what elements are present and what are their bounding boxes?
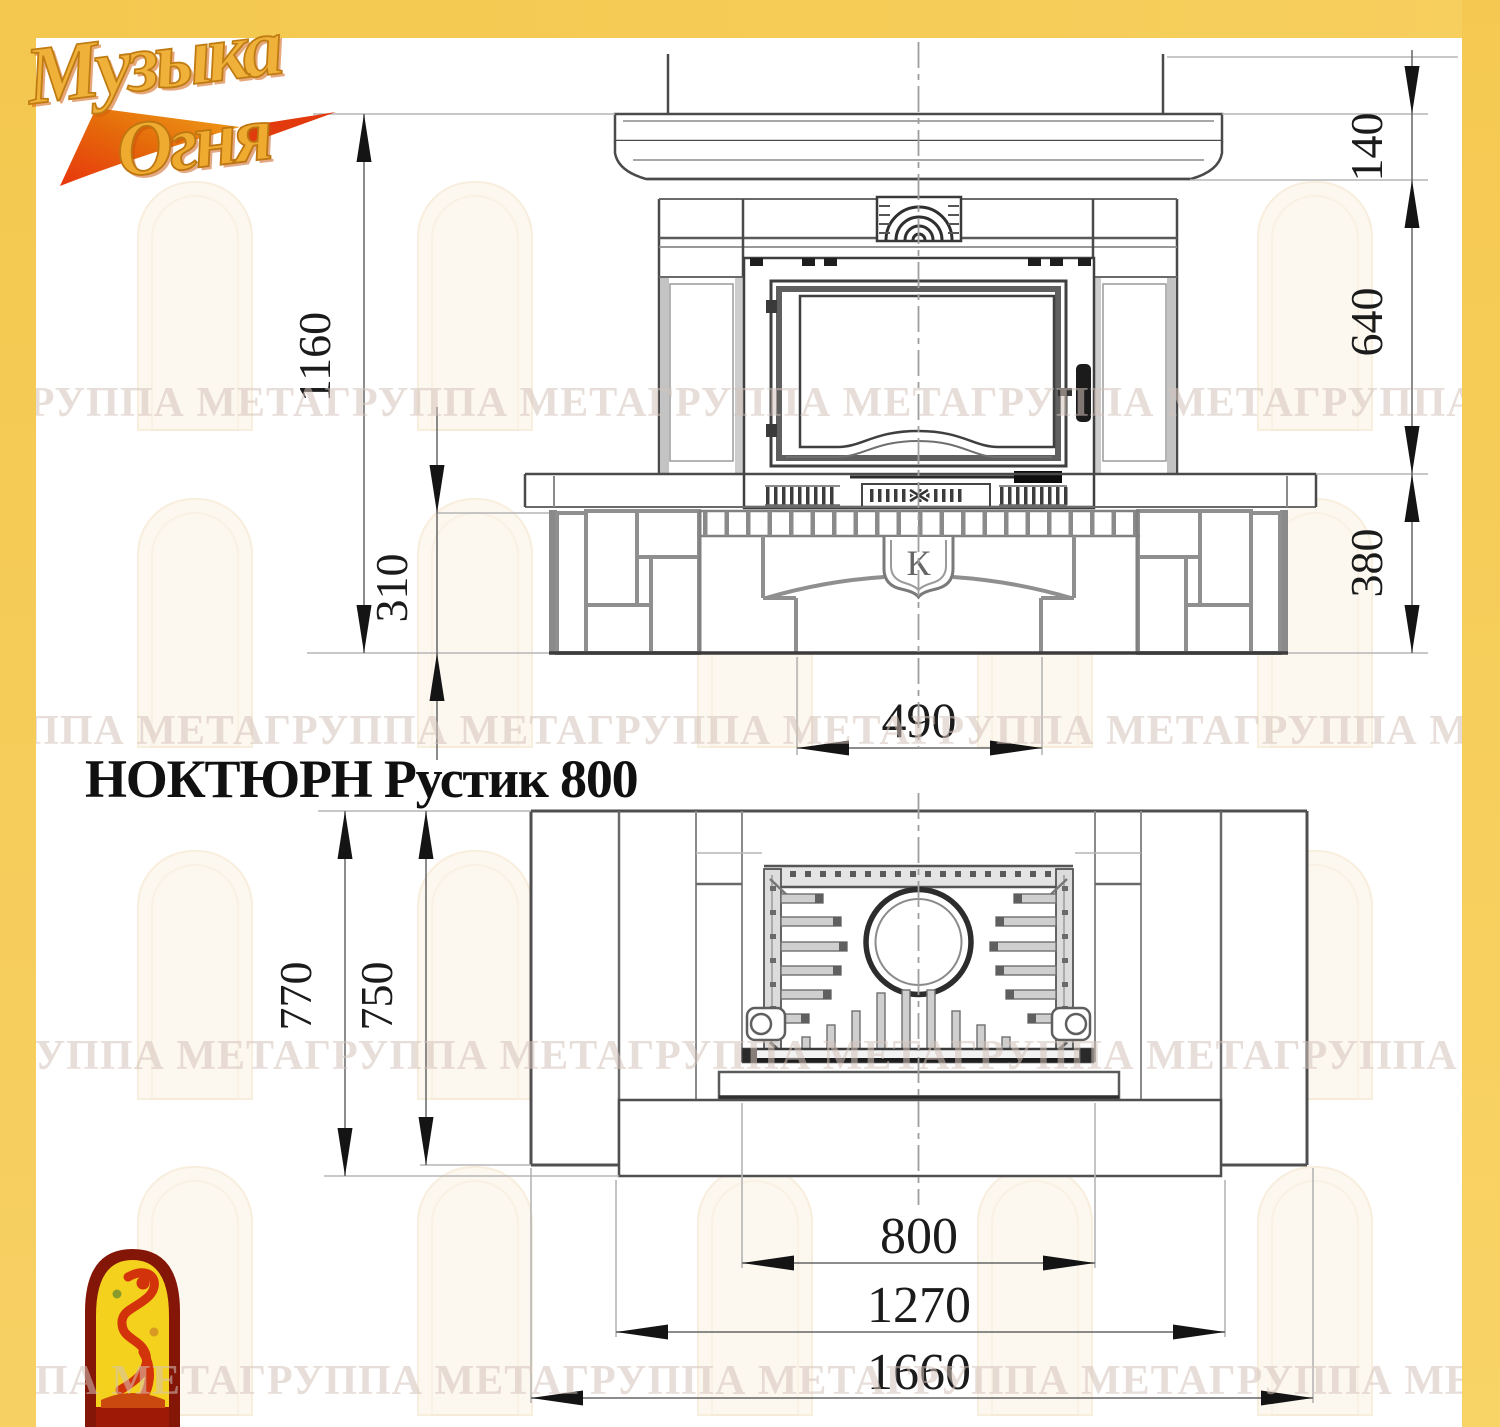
svg-text:640: 640 (1341, 288, 1392, 357)
svg-text:800: 800 (880, 1208, 958, 1265)
svg-text:770: 770 (270, 962, 321, 1031)
svg-text:1270: 1270 (867, 1277, 971, 1334)
svg-text:НОКТЮРН Рустик 800: НОКТЮРН Рустик 800 (85, 749, 637, 809)
svg-text:1660: 1660 (867, 1344, 971, 1401)
svg-text:380: 380 (1341, 529, 1392, 598)
svg-text:750: 750 (351, 962, 402, 1031)
svg-text:310: 310 (366, 554, 417, 623)
svg-text:1160: 1160 (289, 312, 340, 402)
svg-text:140: 140 (1341, 113, 1392, 182)
